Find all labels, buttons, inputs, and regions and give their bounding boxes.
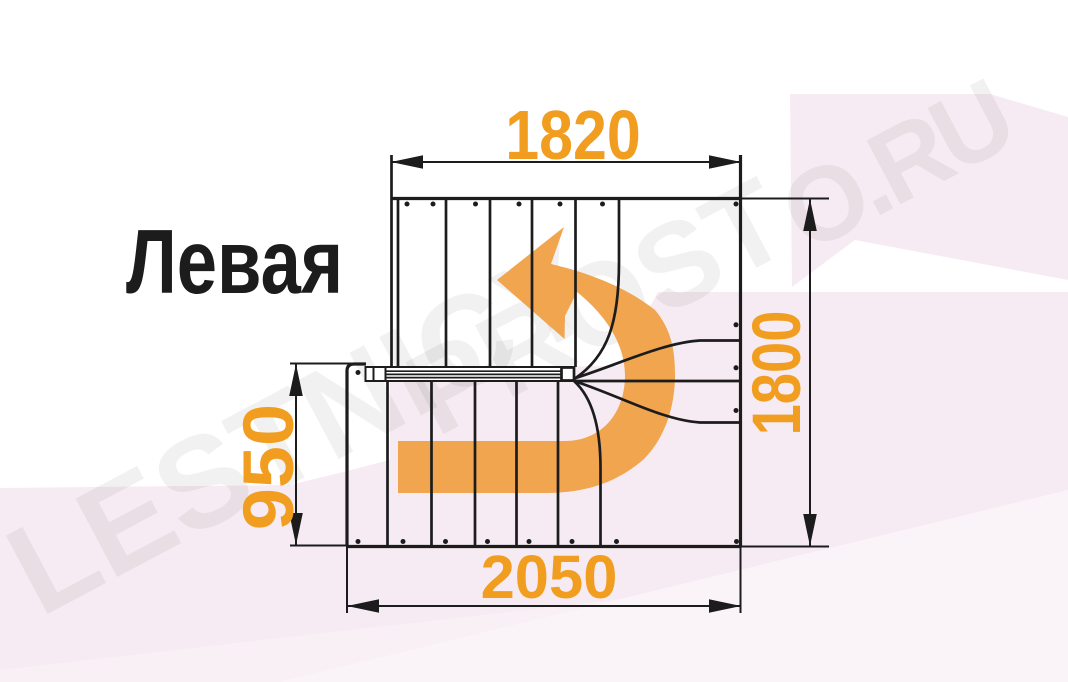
- svg-text:1820: 1820: [505, 96, 640, 174]
- svg-text:2050: 2050: [481, 543, 618, 612]
- svg-text:1800: 1800: [739, 311, 816, 436]
- svg-text:Левая: Левая: [126, 212, 343, 312]
- svg-text:950: 950: [228, 404, 309, 530]
